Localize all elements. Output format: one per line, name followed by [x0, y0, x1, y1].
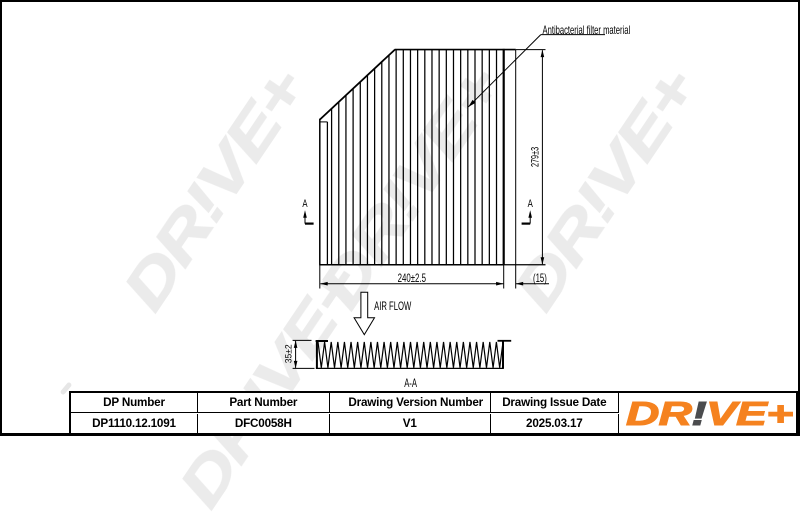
svg-text:279±3: 279±3 — [530, 147, 542, 167]
svg-text:A: A — [528, 198, 534, 210]
svg-text:(15): (15) — [533, 271, 547, 285]
svg-text:240±2.5: 240±2.5 — [398, 271, 427, 285]
svg-text:AIR FLOW: AIR FLOW — [374, 299, 412, 313]
svg-text:35±2: 35±2 — [283, 344, 293, 363]
svg-text:A-A: A-A — [404, 376, 417, 390]
svg-text:Antibacterial filter material: Antibacterial filter material — [543, 23, 631, 37]
svg-text:A: A — [302, 198, 308, 210]
